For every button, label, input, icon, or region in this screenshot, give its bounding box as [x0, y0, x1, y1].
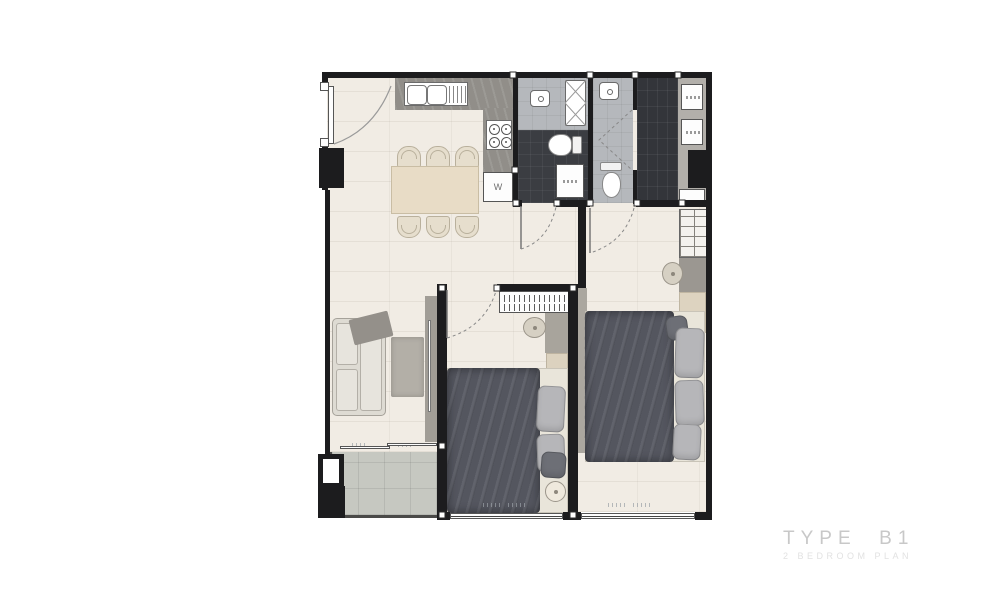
sink-basin [407, 85, 427, 105]
window-annotation [483, 503, 501, 507]
column [319, 148, 344, 188]
shower-area [556, 164, 584, 198]
window-annotation [608, 503, 626, 507]
wall [588, 72, 593, 204]
wall-joint-marker [494, 285, 501, 292]
dining-chair [426, 146, 450, 168]
bed-2-duvet [585, 311, 674, 462]
shaft [318, 454, 344, 488]
kitchen-sink [404, 82, 468, 106]
wall-joint-marker [570, 512, 577, 519]
wall-joint-marker [587, 72, 594, 79]
wall-joint-marker [675, 72, 682, 79]
pillow [672, 423, 702, 460]
bathroom-sink-icon [599, 82, 619, 100]
wall-joint-marker [439, 512, 446, 519]
balcony-floor [329, 452, 437, 518]
wall [497, 284, 578, 291]
pillow [540, 451, 567, 479]
window-annotation [633, 503, 651, 507]
wall-joint-marker [512, 167, 519, 174]
washing-machine: W [483, 172, 513, 202]
washer-label: W [484, 173, 512, 201]
sliding-door-panel [387, 443, 437, 446]
wall-joint-marker [554, 200, 561, 207]
wall-joint-marker [632, 72, 639, 79]
wall-joint-marker [510, 72, 517, 79]
dining-chair [455, 216, 479, 238]
column [318, 486, 345, 518]
tv [428, 320, 431, 412]
pillow [674, 328, 705, 379]
plan-title: TYPE B1 [783, 528, 914, 550]
pillow [674, 380, 705, 427]
plan-subtitle: 2 BEDROOM PLAN [783, 551, 912, 561]
entrance-door-leaf [328, 86, 334, 144]
toilet-tank [572, 136, 582, 154]
stove [486, 120, 512, 150]
wall [325, 190, 330, 455]
toilet-bowl [602, 172, 621, 198]
wall [437, 284, 447, 513]
floor-plan: W [0, 0, 1000, 600]
closet-shelves [679, 209, 707, 258]
stool [523, 317, 546, 338]
coffee-table [391, 337, 424, 397]
bedside-stool [545, 481, 566, 502]
dining-chair [397, 216, 421, 238]
wall-joint-marker [587, 200, 594, 207]
wall [636, 200, 712, 207]
bed-1-duvet [447, 368, 540, 513]
cabinet [681, 84, 703, 110]
shower-tray [565, 80, 586, 126]
bathroom-sink-icon [530, 90, 550, 107]
wall-joint-marker [679, 200, 686, 207]
wall-joint-marker [439, 443, 446, 450]
dining-table [391, 166, 479, 214]
sliding-door-panel [340, 446, 390, 449]
wall-joint-marker [513, 200, 520, 207]
window-annotation [508, 503, 526, 507]
wall [513, 72, 518, 206]
dining-chair [397, 146, 421, 168]
wall-joint-marker [634, 200, 641, 207]
dark-closet-floor [637, 78, 678, 203]
dresser [545, 313, 569, 353]
toilet-tank [600, 162, 622, 171]
sink-basin [427, 85, 447, 105]
pillow [536, 385, 566, 432]
window [581, 513, 695, 519]
dining-chair [426, 216, 450, 238]
wall [568, 285, 578, 513]
wall-joint-marker [439, 285, 446, 292]
wall [706, 72, 712, 518]
sink-drain-rack [449, 86, 466, 103]
toilet-bowl [548, 134, 572, 156]
wall-joint-marker [570, 285, 577, 292]
cabinet [679, 258, 707, 292]
wardrobe-hangers [499, 291, 570, 313]
wall [695, 512, 712, 520]
cabinet [681, 119, 703, 145]
stool [662, 262, 683, 285]
sofa [332, 318, 386, 416]
wall [578, 200, 586, 288]
dining-chair [455, 146, 479, 168]
window [450, 513, 563, 519]
